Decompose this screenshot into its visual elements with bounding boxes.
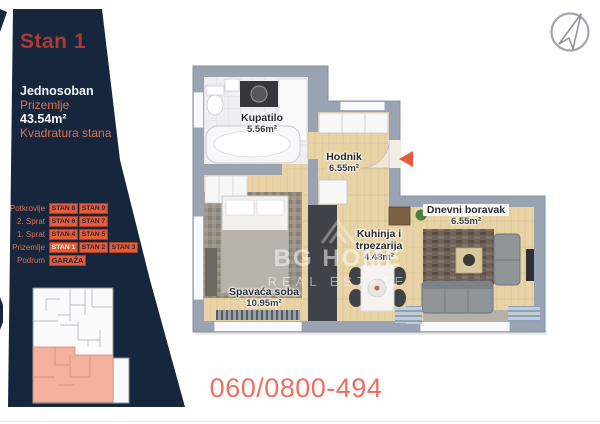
apartment-info: Jednosoban Prizemlje 43.54m² Kvadratura … [20,84,111,140]
unit-cell-stan2[interactable]: STAN 2 [79,242,108,253]
plate-detail [375,286,380,291]
floor-row-2sprat: 2. Sprat STAN 6 STAN 7 [0,215,138,228]
floor-label: Potkrovlje [0,204,48,213]
floor-row-1sprat: 1. Sprat STAN 4 STAN 5 [0,228,138,241]
floor-label: Prizemlje [0,243,48,252]
hallway-closet [319,113,388,133]
edge-sliver-bottom [0,297,3,330]
sink [225,79,239,91]
floors-table: Potkrovlje STAN 8 STAN 9 2. Sprat STAN 6… [0,202,138,267]
kitchen-counter [389,207,410,225]
table-plant [463,254,475,266]
label-kuhinja: Kuhinja i trpezarija 4.48m² [356,228,403,263]
floor-row-podrum: Podrum GARAŽA [0,254,138,267]
toilet [207,95,223,115]
floor-row-prizemlje: Prizemlje STAN 1 STAN 2 STAN 3 [0,241,138,254]
apartment-title: Stan 1 [20,30,86,54]
pillow [226,200,254,215]
sofa-side [494,234,520,285]
apartment-floor: Prizemlje [20,98,111,112]
entry-arrow-icon [399,151,413,167]
unit-cell-stan6[interactable]: STAN 6 [49,216,78,227]
label-hodnik: Hodnik 6.55m² [326,151,362,174]
compass-north-icon [545,8,595,58]
living-radiator [406,306,422,324]
mini-plan-highlighted-unit [33,347,113,402]
edge-sliver-top [0,9,7,32]
bathroom-door-opening [307,132,319,159]
page-divider [0,421,600,422]
apartment-area-caption: Kvadratura stana [20,126,111,140]
floor-label: Podrum [0,256,48,265]
floor-label: 2. Sprat [0,217,48,226]
tv [526,249,534,281]
partition-wall-dark [308,205,337,321]
label-spavaca-soba: Spavaća soba 10.95m² [229,286,299,309]
unit-cell-stan1-active[interactable]: STAN 1 [49,242,78,253]
unit-cell-stan7[interactable]: STAN 7 [79,216,108,227]
floor-row-potkrovlje: Potkrovlje STAN 8 STAN 9 [0,202,138,215]
label-dnevni-boravak: Dnevni boravak 6.55m² [423,204,509,227]
label-kupatilo: Kupatilo 5.56m² [241,112,283,135]
sofa-backrest [422,281,493,289]
apartment-area: 43.54m² [20,112,111,126]
unit-cell-stan9[interactable]: STAN 9 [79,203,108,214]
mini-building-plan [30,285,134,407]
unit-cell-garaza[interactable]: GARAŽA [49,255,86,266]
pillow [257,200,284,215]
apartment-type: Jednosoban [20,84,111,98]
phone-number: 060/0800-494 [180,373,412,404]
wardrobe [205,248,217,296]
living-radiator-right [508,306,540,322]
washing-machine-door [251,86,267,102]
bedroom-radiator [216,310,300,320]
bedroom-door-opening [282,164,308,176]
unit-cell-stan8[interactable]: STAN 8 [49,203,78,214]
building-annex [113,358,129,403]
kitchen-closet [319,180,347,204]
flyer-page: Stan 1 Jednosoban Prizemlje 43.54m² Kvad… [0,0,600,424]
blanket [222,230,288,292]
toilet-tank [206,86,224,95]
unit-cell-stan3[interactable]: STAN 3 [109,242,138,253]
unit-cell-stan4[interactable]: STAN 4 [49,229,78,240]
unit-cell-stan5[interactable]: STAN 5 [79,229,108,240]
floor-label: 1. Sprat [0,230,48,239]
